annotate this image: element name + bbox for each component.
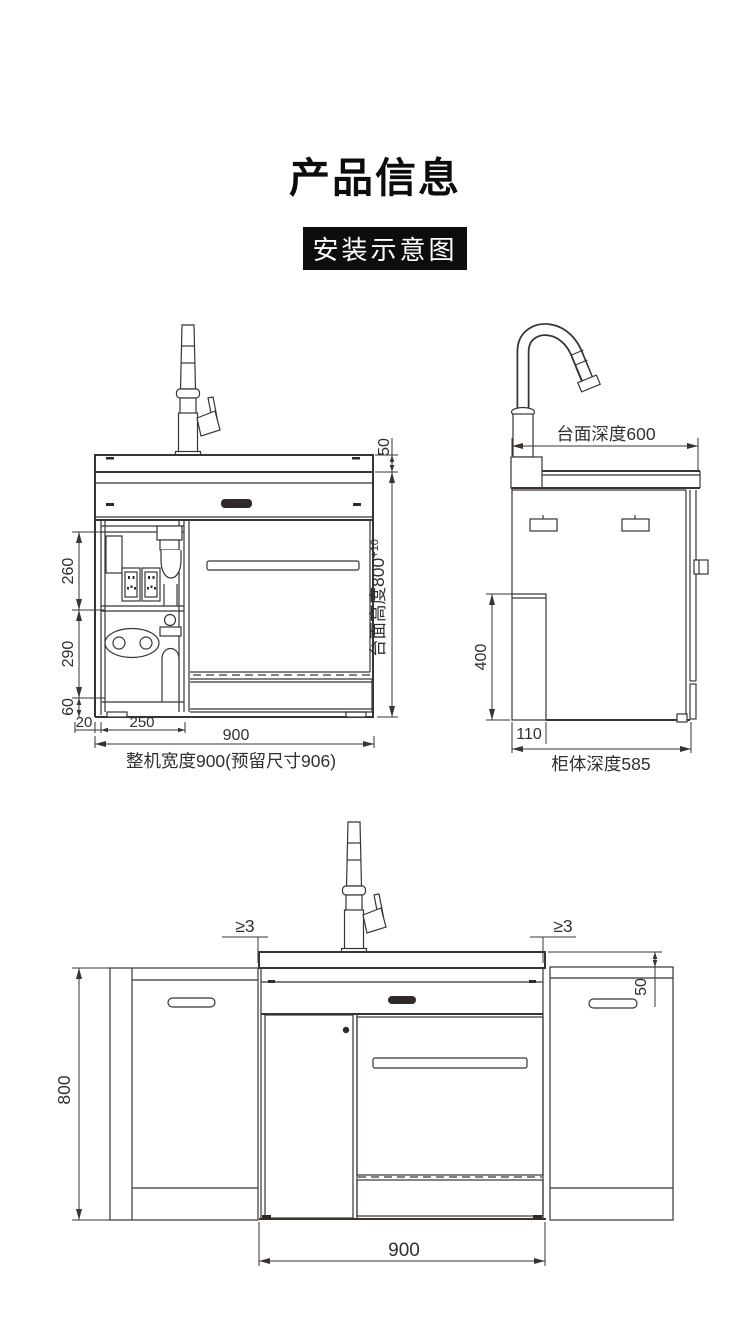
power-outlets [122,568,160,601]
cabinet-handle [168,998,215,1007]
kitchen-faucet-icon [176,325,221,455]
drain-box [157,526,182,540]
front-dimensions: 260 290 60 20 250 900 整机宽度900(预留尺寸906) 5… [60,438,398,771]
dim-110: 110 [516,726,542,743]
dim-counter-height-tolerance: +10 [369,539,381,558]
left-door [265,1015,353,1218]
dim-60: 60 [60,698,77,716]
kick-step [677,714,687,722]
brand-logo [388,996,416,1004]
dim-900-install: 900 [388,1240,420,1261]
label-overall-width: 整机宽度900(预留尺寸906) [126,751,336,771]
back-service-box [512,594,546,720]
cabinet-foot [533,1215,542,1219]
dim-260: 260 [60,558,77,585]
label-counter-depth: 台面深度600 [556,424,655,444]
dim-290: 290 [60,641,77,668]
side-vent [530,519,557,531]
side-view-drawing: 台面深度600 400 110 柜体深度585 [473,330,708,774]
cabinet-foot [107,712,127,717]
pipe-arch [162,649,179,703]
dim-900-front: 900 [223,727,250,744]
pipe-port [165,615,176,626]
brand-logo [221,499,252,508]
door-handle [373,1058,527,1068]
installation-diagrams: 260 290 60 20 250 900 整机宽度900(预留尺寸906) 5… [0,0,750,1335]
dim-counter-height-main: 台面高度800 [368,557,388,656]
base-drawer [357,1180,543,1216]
sink-apron [95,499,373,520]
kitchen-faucet-icon [342,822,387,952]
cabinet-foot [262,1215,271,1219]
shelf [106,536,122,573]
product-info-page: 产品信息 安装示意图 [0,0,750,1335]
dim-50-install: 50 [633,978,650,996]
dishwasher-door [190,561,370,675]
front-countertop [95,455,373,483]
dim-20: 20 [76,714,93,731]
dim-400: 400 [473,644,490,671]
drain-trap [161,550,181,578]
dim-250: 250 [129,714,154,731]
cabinet-handle [589,999,637,1008]
base-drawer [190,679,372,712]
install-main-unit [259,952,546,1219]
side-door-handle [694,560,708,574]
door-knob [343,1027,349,1033]
dim-gap-right: ≥3 [553,916,572,936]
dim-counter-height: 台面高度800+10 [368,539,388,657]
side-dimensions: 台面深度600 400 110 柜体深度585 [473,424,698,774]
dim-gap-left: ≥3 [235,916,254,936]
install-countertop [259,952,545,968]
faucet-deck [511,457,542,488]
side-cabinet [511,457,708,722]
install-view-drawing: ≥3 ≥3 50 800 900 [54,822,673,1266]
service-compartment [101,520,189,712]
dishwasher-door [357,1017,543,1175]
side-vent [622,519,649,531]
install-left-cabinet [110,968,258,1220]
front-view-drawing: 260 290 60 20 250 900 整机宽度900(预留尺寸906) 5… [60,325,398,771]
dim-50-front: 50 [376,438,393,456]
dim-800: 800 [54,1075,74,1104]
label-cabinet-depth: 柜体深度585 [551,754,650,774]
cabinet-foot [346,712,366,717]
door-handle [207,561,359,570]
